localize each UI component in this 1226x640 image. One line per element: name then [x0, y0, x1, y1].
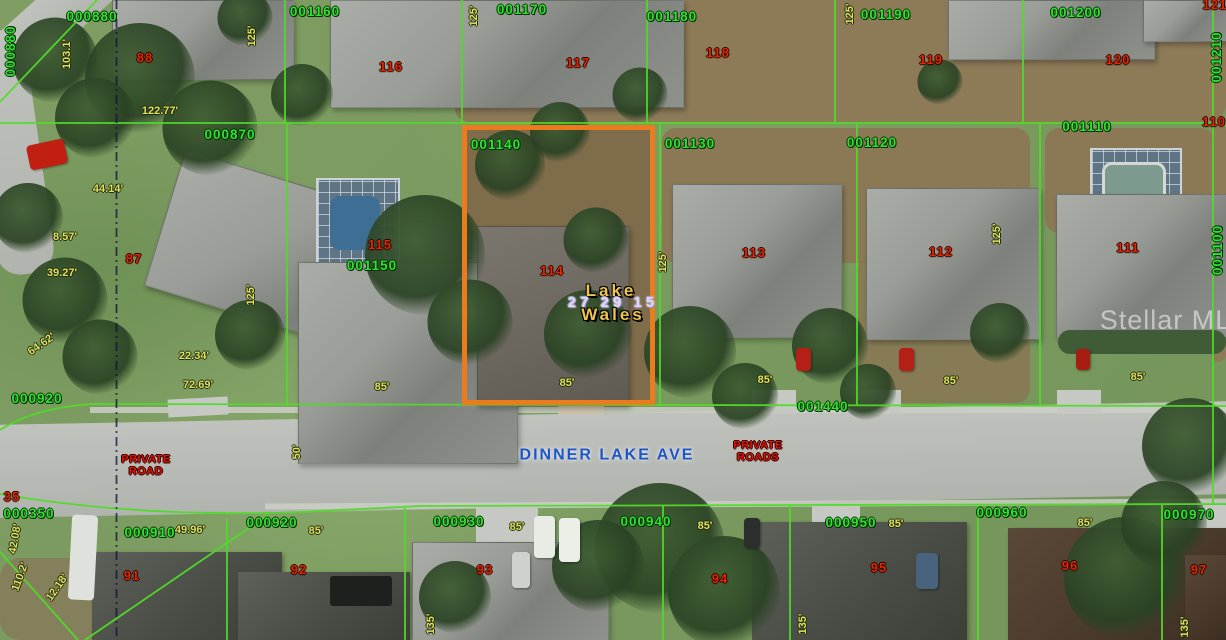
private-road-note: PRIVATEROAD	[121, 454, 171, 477]
dimension-label: 39.27'	[47, 268, 77, 280]
parcel-id-label: 001150	[347, 259, 397, 273]
watermark: Stellar MLS	[1100, 306, 1226, 334]
dimension-label: 125'	[469, 6, 481, 27]
parcel-id-label: 000880	[66, 10, 117, 24]
dimension-label: 85'	[944, 376, 959, 388]
lot-number: 91	[124, 569, 140, 583]
aerial-map: DINNER LAKE AVE 000880000880001160001170…	[0, 0, 1226, 640]
lot-number: 92	[291, 563, 307, 577]
parcel-id-label: 000920	[246, 516, 297, 530]
parcel-id-label: 000920	[11, 392, 62, 406]
lot-number: 95	[871, 561, 887, 575]
dimension-label: 85'	[1131, 372, 1146, 384]
dimension-label: 85'	[889, 519, 904, 531]
dimension-label: 42.08'	[8, 523, 25, 555]
dimension-label: 85'	[560, 378, 575, 390]
parcel-id-label: 000910	[124, 526, 175, 540]
dimension-label: 44.14'	[93, 184, 123, 196]
parcel-id-label: 000960	[976, 506, 1027, 520]
private-road-note: PRIVATEROADS	[733, 440, 783, 463]
dimension-label: 135'	[426, 614, 438, 635]
parcel-id-label: 001180	[647, 10, 697, 24]
lot-number: 110	[1202, 115, 1226, 129]
dimension-label: 110.2'	[11, 561, 32, 593]
parcel-id-label: 001200	[1050, 6, 1101, 20]
dimension-label: 64.62'	[26, 332, 57, 359]
parcel-id-label: 001190	[861, 8, 911, 22]
dimension-label: 122.77'	[142, 106, 178, 118]
parcel-id-label: 000970	[1163, 508, 1214, 522]
parcel-id-label: 001110	[1062, 120, 1112, 134]
parcel-id-label: 001120	[847, 136, 897, 150]
parcel-id-label: 000350	[3, 507, 54, 521]
dimension-label: 125'	[845, 4, 857, 25]
dimension-label: 12.18'	[45, 572, 72, 603]
lot-number: 112	[929, 245, 953, 259]
dimension-label: 85'	[758, 375, 773, 387]
lot-number: 121	[1203, 0, 1226, 12]
parcel-id-label: 001140	[471, 138, 521, 152]
parcel-id-label: 001100	[1211, 225, 1225, 275]
dimension-label: 85'	[309, 526, 324, 538]
dimension-label: 72.69'	[183, 380, 213, 392]
lot-number: 94	[712, 572, 728, 586]
lot-number: 115	[368, 238, 392, 252]
parcel-id-label: 000880	[4, 25, 18, 76]
lot-number: 111	[1116, 241, 1139, 255]
subject-parcel-overlay-text: Wales	[581, 306, 645, 324]
dimension-label: 125'	[246, 285, 258, 306]
parcel-id-label: 001170	[497, 3, 547, 17]
parcel-id-label: 001210	[1210, 31, 1224, 82]
lot-number: 113	[742, 246, 766, 260]
lot-number: 96	[1062, 559, 1078, 573]
map-labels-layer: DINNER LAKE AVE 000880000880001160001170…	[0, 0, 1226, 640]
parcel-id-label: 000930	[433, 515, 484, 529]
dimension-label: 85'	[1078, 518, 1093, 530]
lot-number: 93	[477, 563, 493, 577]
dimension-label: 22.34'	[179, 351, 209, 363]
lot-number: 114	[540, 264, 564, 278]
dimension-label: 8.57'	[53, 232, 77, 244]
lot-number: 116	[379, 60, 403, 74]
street-name-label: DINNER LAKE AVE	[520, 448, 695, 465]
dimension-label: 50'	[292, 445, 304, 460]
dimension-label: 49.96'	[175, 525, 205, 537]
dimension-label: 135'	[1180, 617, 1192, 638]
lot-number: 119	[919, 53, 943, 67]
parcel-id-label: 001130	[665, 137, 715, 151]
parcel-id-label: 000950	[825, 516, 876, 530]
lot-number: 120	[1106, 53, 1131, 67]
lot-number: 118	[706, 46, 730, 60]
dimension-label: 135'	[798, 614, 810, 635]
lot-number: 88	[137, 51, 153, 65]
lot-number: 117	[566, 56, 590, 70]
parcel-id-label: 000940	[620, 515, 671, 529]
dimension-label: 85'	[375, 382, 390, 394]
dimension-label: 125'	[658, 252, 670, 273]
lot-number: 87	[126, 252, 142, 266]
dimension-label: 85'	[698, 521, 713, 533]
parcel-id-label: 001440	[797, 400, 848, 414]
lot-number: 97	[1191, 563, 1207, 577]
parcel-id-label: 001160	[290, 5, 340, 19]
parcel-id-label: 000870	[204, 128, 255, 142]
dimension-label: 125'	[247, 26, 259, 47]
lot-number: 35	[4, 490, 20, 504]
dimension-label: 85'	[510, 522, 525, 534]
dimension-label: 125'	[992, 224, 1004, 245]
dimension-label: 103.1'	[62, 39, 74, 69]
